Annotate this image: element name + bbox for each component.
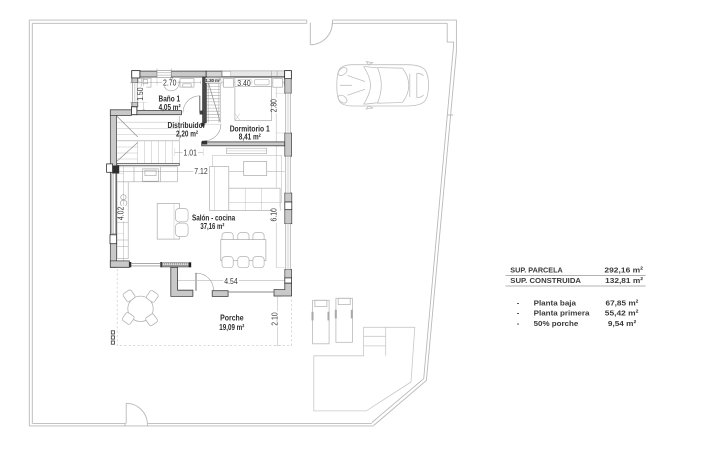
svg-text:9,54 m²: 9,54 m² <box>608 319 637 328</box>
svg-text:67,85 m²: 67,85 m² <box>606 298 639 307</box>
svg-text:19,09 m²: 19,09 m² <box>219 323 244 332</box>
svg-text:4.02: 4.02 <box>117 206 126 220</box>
svg-text:4.54: 4.54 <box>224 277 238 286</box>
svg-text:6.10: 6.10 <box>270 208 279 222</box>
svg-text:132,81 m²: 132,81 m² <box>605 276 643 285</box>
svg-text:50% porche: 50% porche <box>534 319 579 328</box>
svg-text:2,20 m²: 2,20 m² <box>176 130 198 139</box>
svg-text:2.80: 2.80 <box>270 99 279 113</box>
svg-text:1.01: 1.01 <box>184 148 198 157</box>
svg-text:292,16 m²: 292,16 m² <box>604 265 643 274</box>
svg-text:4,05 m²: 4,05 m² <box>159 103 181 112</box>
svg-text:2.10: 2.10 <box>270 312 279 326</box>
svg-text:37,16 m²: 37,16 m² <box>200 222 224 231</box>
svg-text:Distribuidor: Distribuidor <box>168 120 206 130</box>
svg-text:3.40: 3.40 <box>237 79 251 88</box>
svg-text:Planta baja: Planta baja <box>534 298 577 307</box>
svg-text:Planta primera: Planta primera <box>534 309 591 318</box>
svg-text:SUP. PARCELA: SUP. PARCELA <box>510 265 563 274</box>
svg-text:8,41 m²: 8,41 m² <box>239 133 261 142</box>
svg-text:7.12: 7.12 <box>194 167 208 176</box>
svg-text:55,42 m²: 55,42 m² <box>605 309 639 318</box>
svg-text:2.70: 2.70 <box>163 79 177 88</box>
svg-text:1.30 m²: 1.30 m² <box>205 78 221 83</box>
svg-text:Porche: Porche <box>220 313 244 323</box>
svg-text:Baño 1: Baño 1 <box>159 93 181 103</box>
svg-text:1.50: 1.50 <box>136 87 145 101</box>
svg-text:SUP. CONSTRUIDA: SUP. CONSTRUIDA <box>510 276 581 285</box>
